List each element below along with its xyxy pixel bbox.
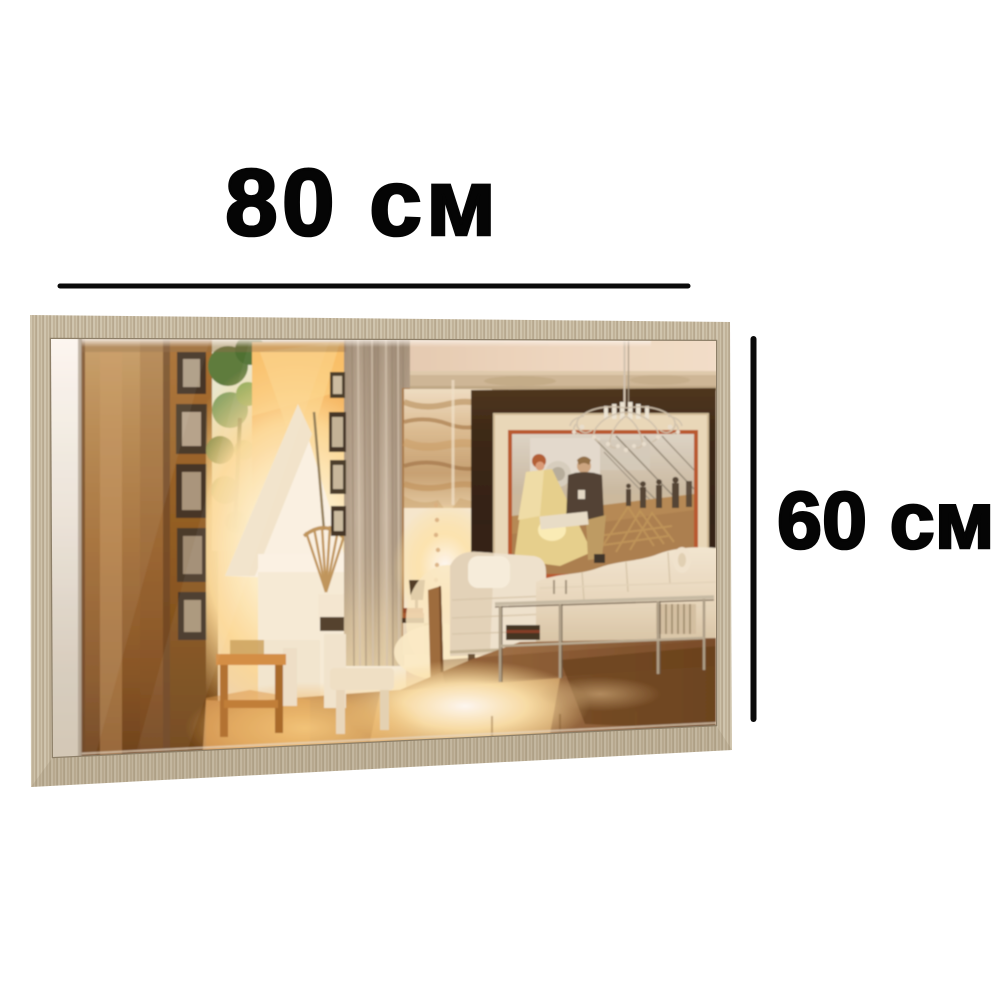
svg-text:80 см: 80 см: [225, 150, 500, 256]
svg-text:60 см: 60 см: [777, 476, 995, 566]
